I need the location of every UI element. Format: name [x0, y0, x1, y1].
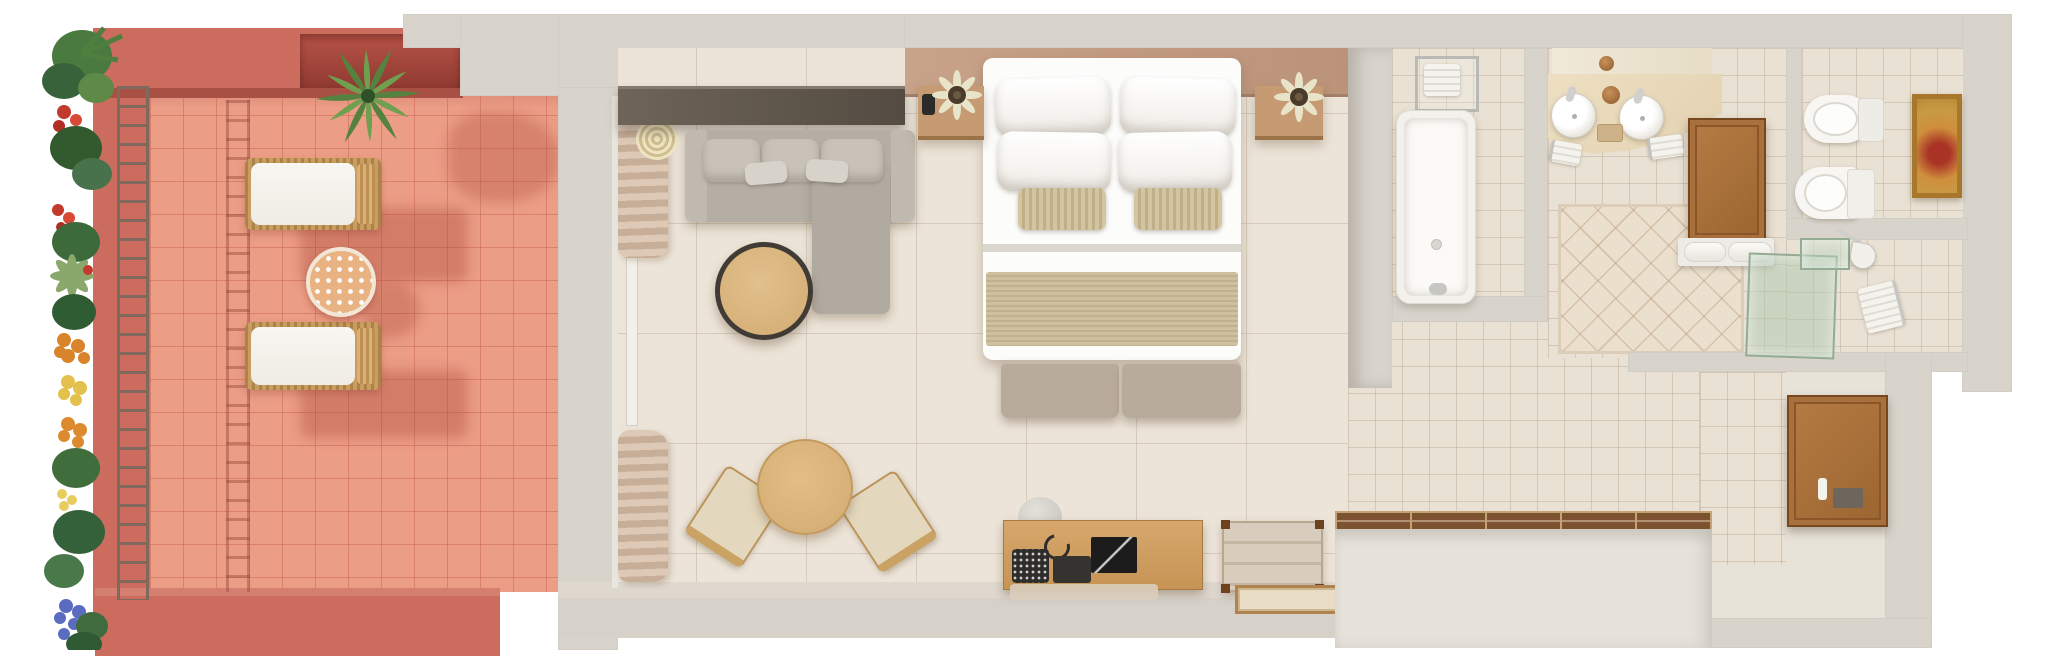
toilet-seat [1804, 174, 1847, 212]
bed-runner [986, 272, 1238, 346]
bathtub-faucet-icon [1429, 283, 1447, 295]
bed-pillow [996, 131, 1111, 193]
rolled-towel [1684, 242, 1726, 262]
flower-border-icon [34, 26, 126, 650]
wall-art [1912, 94, 1962, 198]
wall-terrace-bedroom [558, 14, 618, 650]
wall-right-upper [1962, 14, 2012, 392]
sofa-chaise [812, 166, 890, 314]
bed-pillow [1119, 76, 1236, 137]
cabinet-panel [1695, 125, 1759, 235]
vessel-sink-right [1619, 95, 1664, 140]
wall-terrace-corner [460, 14, 560, 96]
console-candle [1818, 478, 1827, 500]
bathtub [1396, 110, 1476, 304]
bathroom-cabinet [1688, 118, 1766, 242]
toilet-tank [1847, 169, 1875, 219]
palm-plant-icon [308, 34, 426, 156]
wardrobe-body [1335, 529, 1712, 648]
tv-panel [1091, 537, 1137, 573]
rack-post [1315, 520, 1324, 529]
vanity-tray [1597, 124, 1623, 142]
rack-post [1221, 520, 1230, 529]
sun-lounger-1 [245, 158, 381, 230]
bedside-plant-icon [932, 70, 982, 120]
bathtub-basin [1404, 118, 1468, 296]
lounger-cushion [251, 327, 355, 385]
wall-entry-bottom [1700, 618, 1932, 648]
sun-lounger-2 [245, 322, 381, 390]
tablet [1053, 556, 1091, 583]
wall-tub-vanity [1524, 48, 1548, 302]
desk-mat [1010, 584, 1158, 600]
sofa-armrest-right [891, 130, 915, 222]
wall-bedroom-bath [1348, 48, 1392, 388]
accent-pillow [1018, 188, 1106, 230]
bed-pillow [994, 76, 1111, 137]
telephone [1012, 549, 1049, 583]
wall-entry-right [1885, 352, 1932, 648]
sliding-door-track [626, 238, 638, 426]
bedside-plant-icon [1274, 72, 1324, 122]
bed-pillow [1117, 131, 1232, 193]
lounger-wicker-headrest [357, 164, 375, 224]
towel-stack [1424, 64, 1460, 96]
lounger-wicker-headrest [357, 328, 375, 384]
luggage-rack [1222, 521, 1323, 592]
sofa-pillow [805, 159, 848, 184]
lounger-cushion [251, 163, 355, 225]
vanity-accessory [1599, 56, 1614, 71]
foot-bench-cushion [1122, 360, 1241, 418]
curtain-bottom [618, 430, 668, 582]
entry-tiles [1700, 372, 1786, 565]
sofa-pillow [744, 160, 788, 186]
accent-pillow [1134, 188, 1222, 230]
duvet-fold [983, 244, 1241, 252]
towel-rack [1415, 56, 1479, 112]
overhead-ledge [618, 86, 905, 125]
bidet-fixture [1858, 98, 1884, 142]
floorplan-canvas [0, 0, 2048, 667]
foot-bench-cushion [1001, 360, 1119, 418]
palm-shadow [448, 112, 560, 202]
dining-table [757, 439, 853, 535]
mosaic-side-table [306, 247, 376, 317]
shower-glass-panel [1800, 238, 1850, 270]
console-box [1833, 488, 1863, 508]
round-coffee-table [715, 242, 813, 340]
bathtub-drain [1431, 239, 1442, 250]
bidet-basin [1813, 102, 1858, 136]
rack-post [1221, 584, 1230, 593]
wall-toilet-shower [1786, 218, 1968, 240]
vessel-sink-left [1551, 93, 1596, 138]
vanity-accessory [1602, 86, 1620, 104]
terrace-wall-bottom [95, 588, 500, 656]
